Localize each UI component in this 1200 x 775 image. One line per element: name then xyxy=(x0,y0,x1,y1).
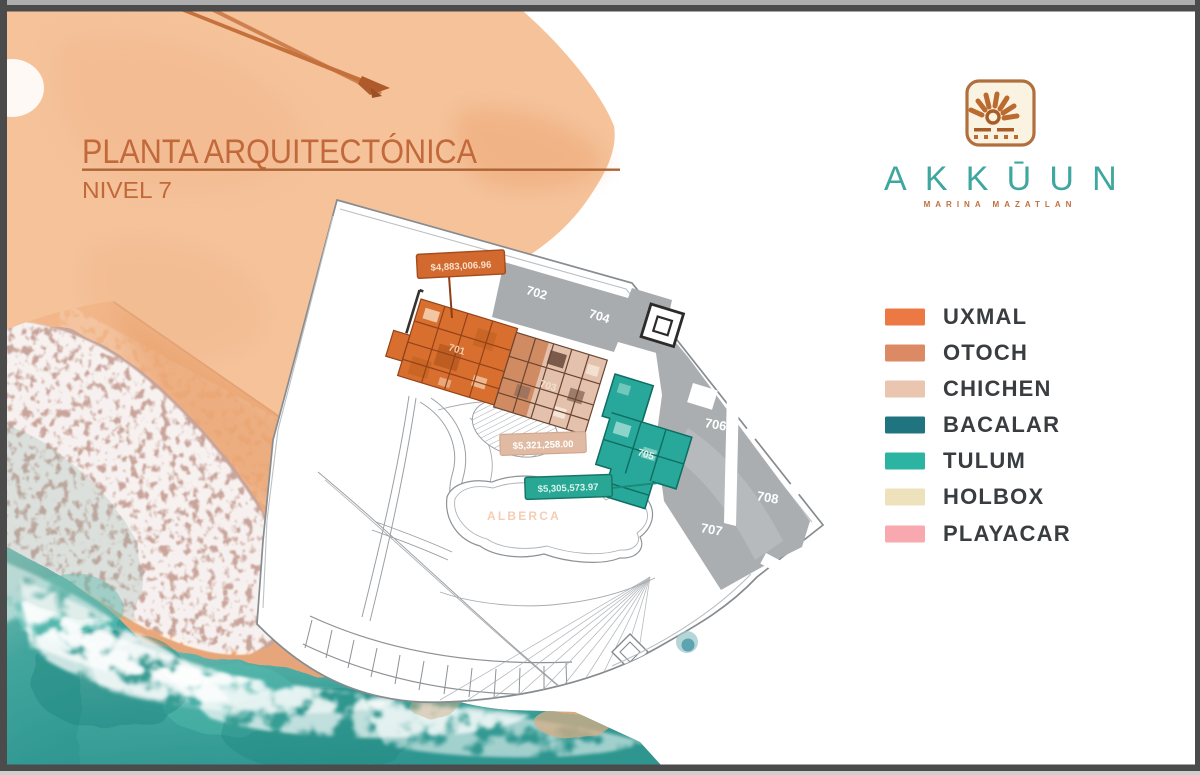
svg-text:TULUM: TULUM xyxy=(943,448,1026,473)
svg-text:AKKŪUN: AKKŪUN xyxy=(884,160,1135,198)
svg-text:BACALAR: BACALAR xyxy=(943,412,1060,437)
svg-text:UXMAL: UXMAL xyxy=(943,304,1027,329)
svg-text:NIVEL 7: NIVEL 7 xyxy=(82,177,172,203)
svg-text:CHICHEN: CHICHEN xyxy=(943,376,1052,401)
svg-text:PLAYACAR: PLAYACAR xyxy=(943,521,1071,546)
svg-text:PLANTA ARQUITECTÓNICA: PLANTA ARQUITECTÓNICA xyxy=(82,133,477,171)
svg-text:MARINA MAZATLAN: MARINA MAZATLAN xyxy=(924,200,1077,209)
svg-text:$5,321,258.00: $5,321,258.00 xyxy=(513,439,574,452)
svg-text:$5,305,573.97: $5,305,573.97 xyxy=(538,482,599,495)
svg-text:HOLBOX: HOLBOX xyxy=(943,484,1044,509)
svg-text:OTOCH: OTOCH xyxy=(943,340,1028,365)
svg-text:ALBERCA: ALBERCA xyxy=(487,509,561,523)
